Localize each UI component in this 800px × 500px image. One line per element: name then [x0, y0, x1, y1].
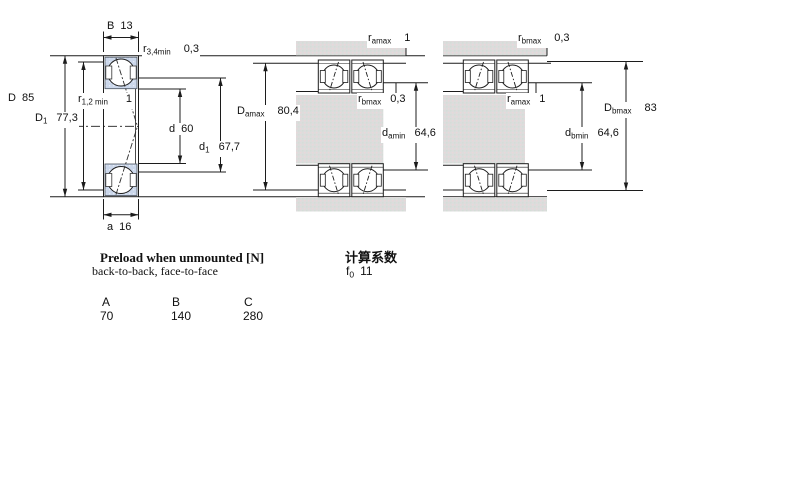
- preload-value-c: 280: [243, 310, 263, 323]
- dim-D: D85: [7, 92, 35, 104]
- dim-r-bmax-a: rbmax0,3: [357, 93, 407, 109]
- dim-d-bmin: dbmin64,6: [564, 127, 620, 143]
- calculation-factor: f011: [346, 265, 373, 282]
- dim-D-bmax: Dbmax83: [603, 102, 658, 118]
- calculation-title: 计算系数: [345, 251, 397, 265]
- dim-B: B13: [106, 20, 134, 32]
- dim-r12min: r1,2 min1: [77, 93, 133, 109]
- preload-col-header-b: B: [172, 296, 180, 309]
- dim-r-amax-a: ramax1: [367, 32, 411, 48]
- preload-col-header-a: A: [102, 296, 110, 309]
- preload-value-b: 140: [171, 310, 191, 323]
- dim-r34min: r3,4min0,3: [142, 43, 200, 59]
- dim-D1: D177,3: [34, 112, 79, 128]
- bearing-datasheet-figure: B13 r3,4min0,3 D85 D177,3 r1,2 min1 d60 …: [0, 0, 800, 500]
- dim-d-amin: damin64,6: [381, 127, 437, 143]
- dim-r-bmax-b: rbmax0,3: [517, 32, 571, 48]
- dim-a: a16: [106, 221, 132, 233]
- dim-d: d60: [168, 123, 194, 135]
- preload-value-a: 70: [100, 310, 113, 323]
- preload-subtitle: back-to-back, face-to-face: [92, 265, 218, 278]
- dim-d1: d167,7: [198, 141, 241, 157]
- dim-D-amax: Damax80,4: [236, 105, 300, 121]
- preload-col-header-c: C: [244, 296, 253, 309]
- preload-title: Preload when unmounted [N]: [100, 251, 264, 265]
- dim-r-amax-b: ramax1: [506, 93, 546, 109]
